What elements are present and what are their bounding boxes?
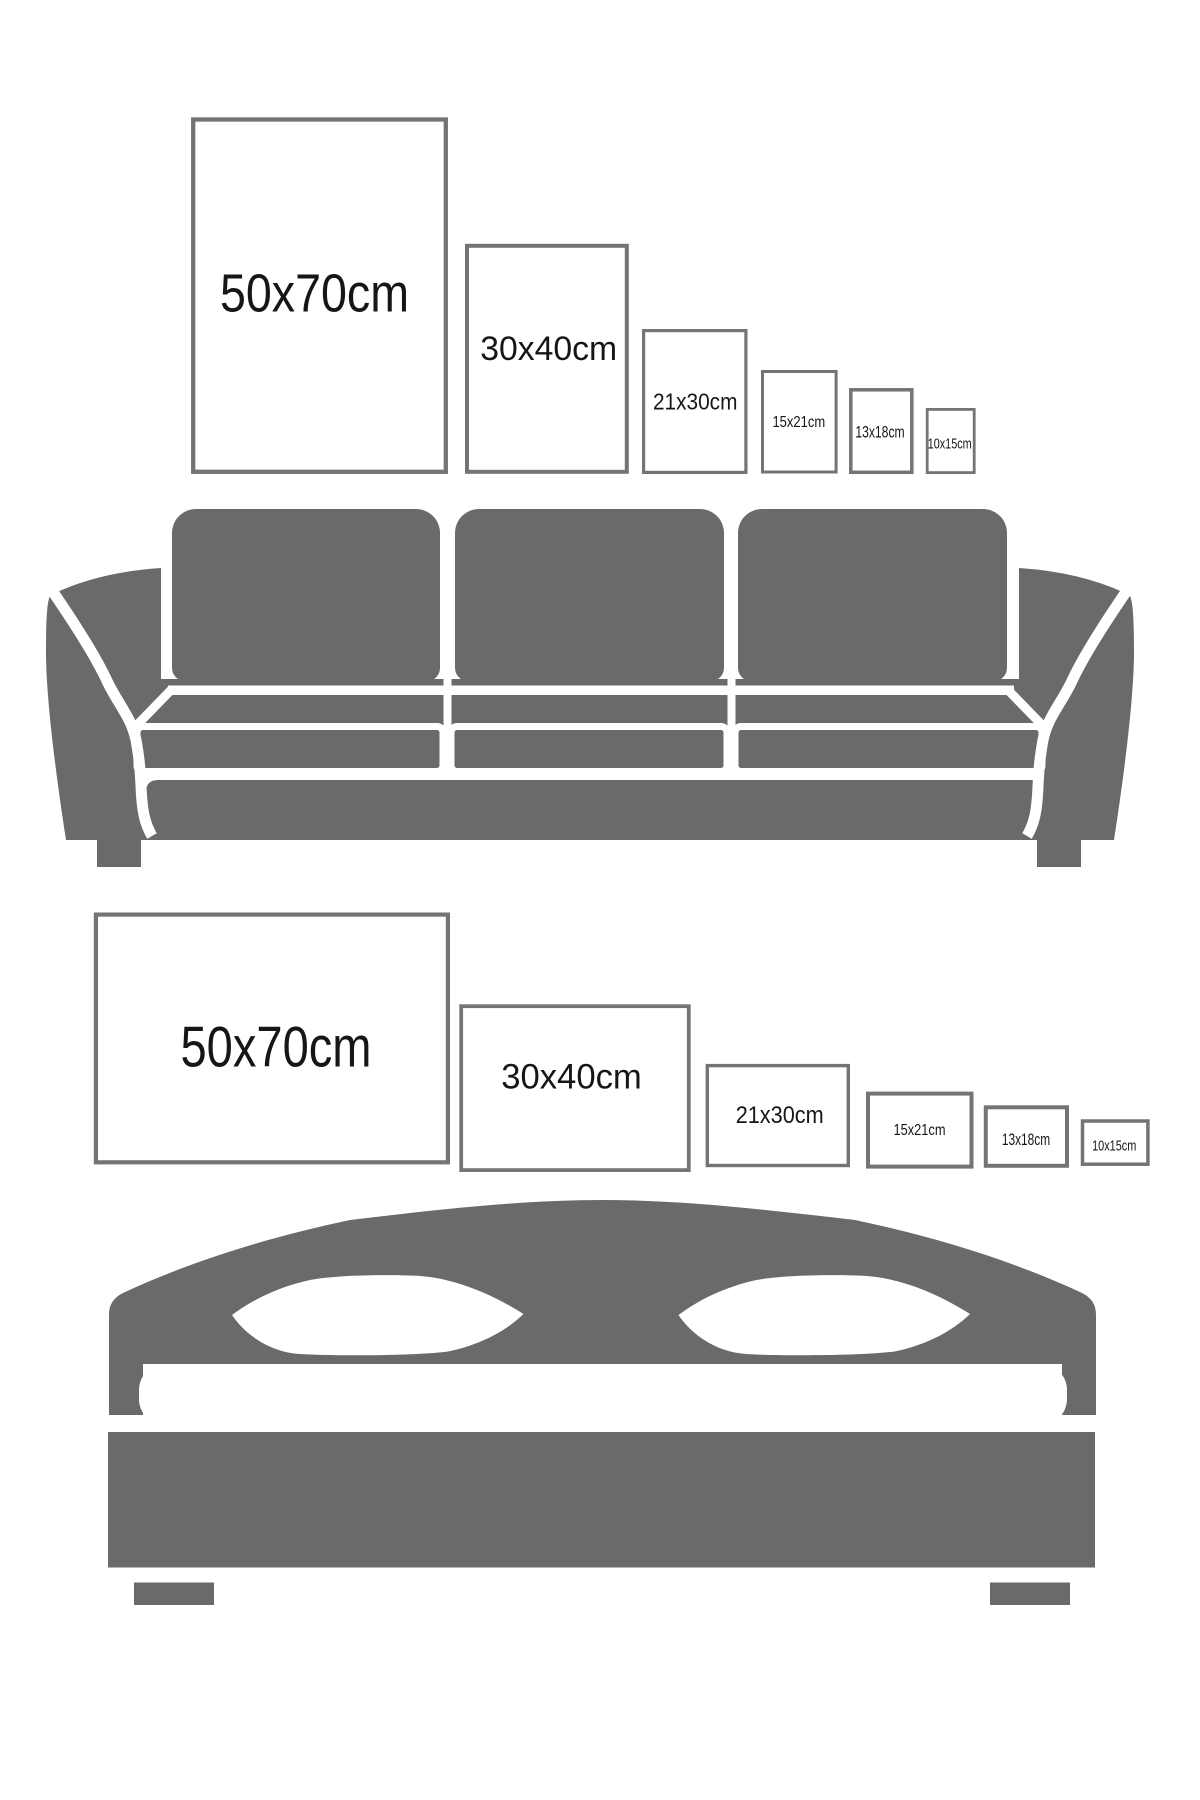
svg-text:30x40cm: 30x40cm [501, 1057, 642, 1096]
svg-text:21x30cm: 21x30cm [653, 389, 738, 415]
svg-text:13x18cm: 13x18cm [855, 423, 904, 441]
svg-text:50x70cm: 50x70cm [181, 1015, 372, 1079]
svg-text:10x15cm: 10x15cm [1092, 1138, 1136, 1154]
svg-text:15x21cm: 15x21cm [894, 1122, 946, 1139]
svg-text:13x18cm: 13x18cm [1002, 1131, 1050, 1149]
svg-text:50x70cm: 50x70cm [220, 263, 409, 323]
svg-text:30x40cm: 30x40cm [480, 330, 617, 368]
svg-text:10x15cm: 10x15cm [928, 437, 972, 453]
svg-text:21x30cm: 21x30cm [736, 1102, 824, 1129]
svg-text:15x21cm: 15x21cm [772, 414, 825, 431]
